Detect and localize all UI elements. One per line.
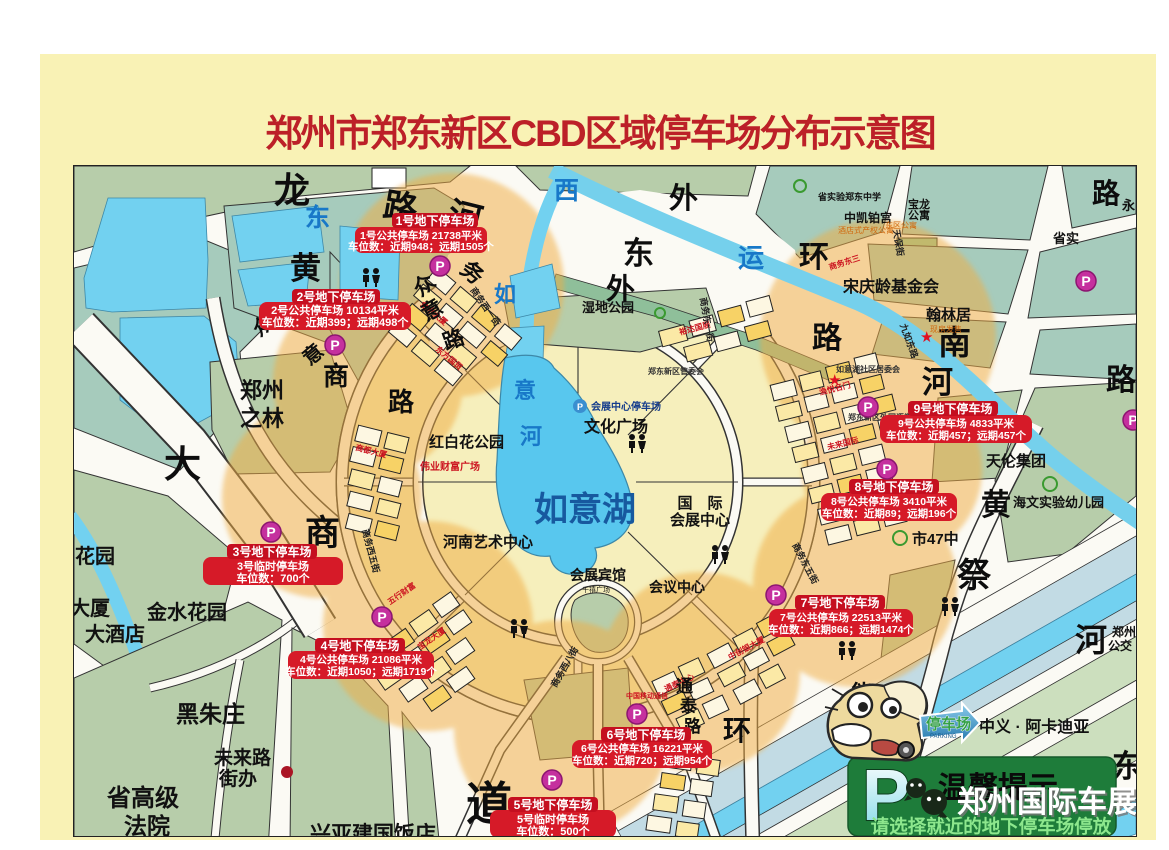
svg-text:会展中心停车场: 会展中心停车场 (591, 400, 661, 413)
svg-text:中国移动通信: 中国移动通信 (626, 691, 668, 700)
svg-text:3号地下停车场: 3号地下停车场 (233, 544, 312, 559)
svg-text:花园: 花园 (75, 545, 115, 568)
svg-text:路: 路 (1106, 364, 1137, 397)
svg-text:河南艺术中心: 河南艺术中心 (443, 533, 533, 551)
svg-text:街办: 街办 (218, 767, 257, 790)
svg-text:省实: 省实 (1052, 231, 1079, 246)
svg-text:翰林居: 翰林居 (926, 306, 971, 324)
svg-text:宝龙: 宝龙 (908, 197, 930, 211)
svg-text:外: 外 (669, 182, 698, 215)
svg-text:5号临时停车场: 5号临时停车场 (517, 812, 589, 826)
svg-text:1号地下停车场: 1号地下停车场 (396, 213, 475, 228)
svg-text:7号地下停车场: 7号地下停车场 (801, 595, 880, 610)
svg-text:郑州国际车展: 郑州国际车展 (957, 785, 1137, 819)
svg-text:运: 运 (738, 243, 764, 273)
svg-text:P: P (547, 772, 556, 788)
svg-text:P: P (1081, 273, 1090, 289)
svg-text:国 际: 国 际 (677, 495, 722, 512)
svg-text:停车场: 停车场 (926, 715, 971, 733)
svg-text:会议中心: 会议中心 (649, 579, 705, 595)
svg-text:车位数：700个: 车位数：700个 (236, 571, 310, 585)
svg-text:PARKING: PARKING (930, 734, 957, 740)
svg-text:公寓: 公寓 (908, 208, 930, 222)
svg-text:P: P (632, 706, 641, 722)
svg-text:黑朱庄: 黑朱庄 (176, 701, 245, 727)
svg-text:意: 意 (514, 378, 536, 403)
svg-text:P: P (577, 402, 583, 412)
svg-text:车位数：近期457；远期457个: 车位数：近期457；远期457个 (886, 429, 1027, 442)
svg-text:永: 永 (1121, 198, 1136, 213)
svg-text:法院: 法院 (124, 813, 170, 839)
svg-text:伟业财富广场: 伟业财富广场 (420, 460, 480, 473)
svg-text:东区公寓: 东区公寓 (885, 220, 917, 230)
svg-text:大厦: 大厦 (70, 597, 111, 620)
svg-text:河: 河 (922, 365, 953, 400)
svg-text:3号临时停车场: 3号临时停车场 (237, 559, 309, 573)
svg-text:未来路: 未来路 (213, 746, 272, 769)
svg-text:P: P (882, 461, 891, 477)
svg-text:P: P (377, 609, 386, 625)
svg-text:4号地下停车场: 4号地下停车场 (321, 638, 400, 653)
svg-text:如意湖: 如意湖 (534, 491, 636, 529)
svg-text:环: 环 (723, 715, 751, 746)
svg-text:6号公共停车场 16221平米: 6号公共停车场 16221平米 (581, 742, 703, 755)
svg-text:中义 · 阿卡迪亚: 中义 · 阿卡迪亚 (979, 717, 1089, 736)
svg-text:西: 西 (554, 177, 579, 205)
svg-text:郑州市郑东新区CBD区域停车场分布示意图: 郑州市郑东新区CBD区域停车场分布示意图 (265, 112, 934, 154)
svg-text:8号公共停车场 3410平米: 8号公共停车场 3410平米 (831, 495, 948, 508)
svg-text:祭: 祭 (957, 557, 992, 595)
svg-text:P: P (330, 337, 339, 353)
svg-text:路: 路 (388, 387, 415, 417)
svg-text:如: 如 (494, 282, 516, 307)
svg-text:公交: 公交 (1108, 638, 1132, 653)
svg-text:湿地公园: 湿地公园 (582, 300, 634, 315)
svg-text:市47中: 市47中 (912, 530, 959, 548)
svg-text:6号地下停车场: 6号地下停车场 (607, 727, 686, 742)
svg-text:郑州: 郑州 (1112, 624, 1136, 639)
svg-text:黄: 黄 (981, 489, 1011, 522)
svg-text:之林: 之林 (240, 406, 284, 431)
svg-text:车位数：近期89；远期196个: 车位数：近期89；远期196个 (822, 507, 957, 520)
svg-text:会展宾馆: 会展宾馆 (570, 567, 626, 583)
svg-text:文化广场: 文化广场 (584, 417, 648, 436)
svg-text:东: 东 (623, 236, 654, 271)
svg-text:如意湖社区居委会: 如意湖社区居委会 (836, 364, 900, 374)
svg-text:河: 河 (1075, 622, 1107, 658)
svg-text:车位数：近期948；远期1505个: 车位数：近期948；远期1505个 (348, 240, 494, 253)
svg-text:2号公共停车场 10134平米: 2号公共停车场 10134平米 (271, 303, 400, 317)
svg-text:千禧广场: 千禧广场 (582, 585, 610, 594)
svg-text:4号公共停车场 21086平米: 4号公共停车场 21086平米 (300, 653, 422, 666)
svg-text:车位数：近期399；远期498个: 车位数：近期399；远期498个 (262, 315, 410, 329)
svg-text:红白花公园: 红白花公园 (429, 433, 504, 451)
svg-text:路: 路 (812, 322, 843, 355)
svg-text:9号地下停车场: 9号地下停车场 (914, 401, 993, 416)
svg-text:会展中心: 会展中心 (670, 511, 730, 529)
svg-text:金水花园: 金水花园 (146, 600, 227, 624)
svg-text:P: P (266, 524, 275, 540)
svg-text:P: P (771, 587, 780, 603)
svg-text:商: 商 (323, 361, 349, 391)
svg-text:大: 大 (164, 444, 201, 485)
svg-text:环: 环 (799, 241, 829, 274)
svg-text:黄: 黄 (290, 251, 321, 286)
svg-text:车位数：500个: 车位数：500个 (516, 824, 590, 838)
svg-text:路: 路 (1092, 178, 1121, 209)
svg-text:省实验郑东中学: 省实验郑东中学 (817, 191, 881, 202)
svg-text:5号地下停车场: 5号地下停车场 (514, 797, 593, 812)
svg-text:泰: 泰 (680, 696, 698, 716)
svg-text:7号公共停车场 22513平米: 7号公共停车场 22513平米 (780, 611, 902, 624)
svg-text:现房发售: 现房发售 (930, 324, 962, 334)
svg-text:大酒店: 大酒店 (85, 623, 145, 646)
svg-text:9号公共停车场 4833平米: 9号公共停车场 4833平米 (898, 417, 1015, 430)
svg-text:P: P (863, 399, 872, 415)
svg-text:东: 东 (305, 203, 330, 232)
svg-text:郑东新区管委会: 郑东新区管委会 (648, 366, 704, 376)
svg-text:★: ★ (828, 372, 841, 389)
svg-text:天伦集团: 天伦集团 (986, 452, 1046, 470)
svg-text:车位数：近期1050；远期1719个: 车位数：近期1050；远期1719个 (285, 665, 437, 678)
svg-text:8号地下停车场: 8号地下停车场 (855, 479, 934, 494)
svg-text:P: P (435, 258, 444, 274)
svg-text:宋庆龄基金会: 宋庆龄基金会 (842, 277, 939, 296)
svg-text:★: ★ (920, 329, 933, 346)
svg-text:通: 通 (676, 677, 693, 696)
svg-text:车位数：近期720；远期954个: 车位数：近期720；远期954个 (572, 754, 713, 767)
svg-text:郑州: 郑州 (240, 378, 284, 403)
svg-text:车位数：近期866；远期1474个: 车位数：近期866；远期1474个 (768, 623, 914, 636)
svg-text:河: 河 (520, 424, 542, 449)
svg-text:省高级: 省高级 (106, 784, 179, 812)
svg-text:海文实验幼儿园: 海文实验幼儿园 (1013, 495, 1104, 510)
svg-text:2号地下停车场: 2号地下停车场 (297, 289, 376, 304)
